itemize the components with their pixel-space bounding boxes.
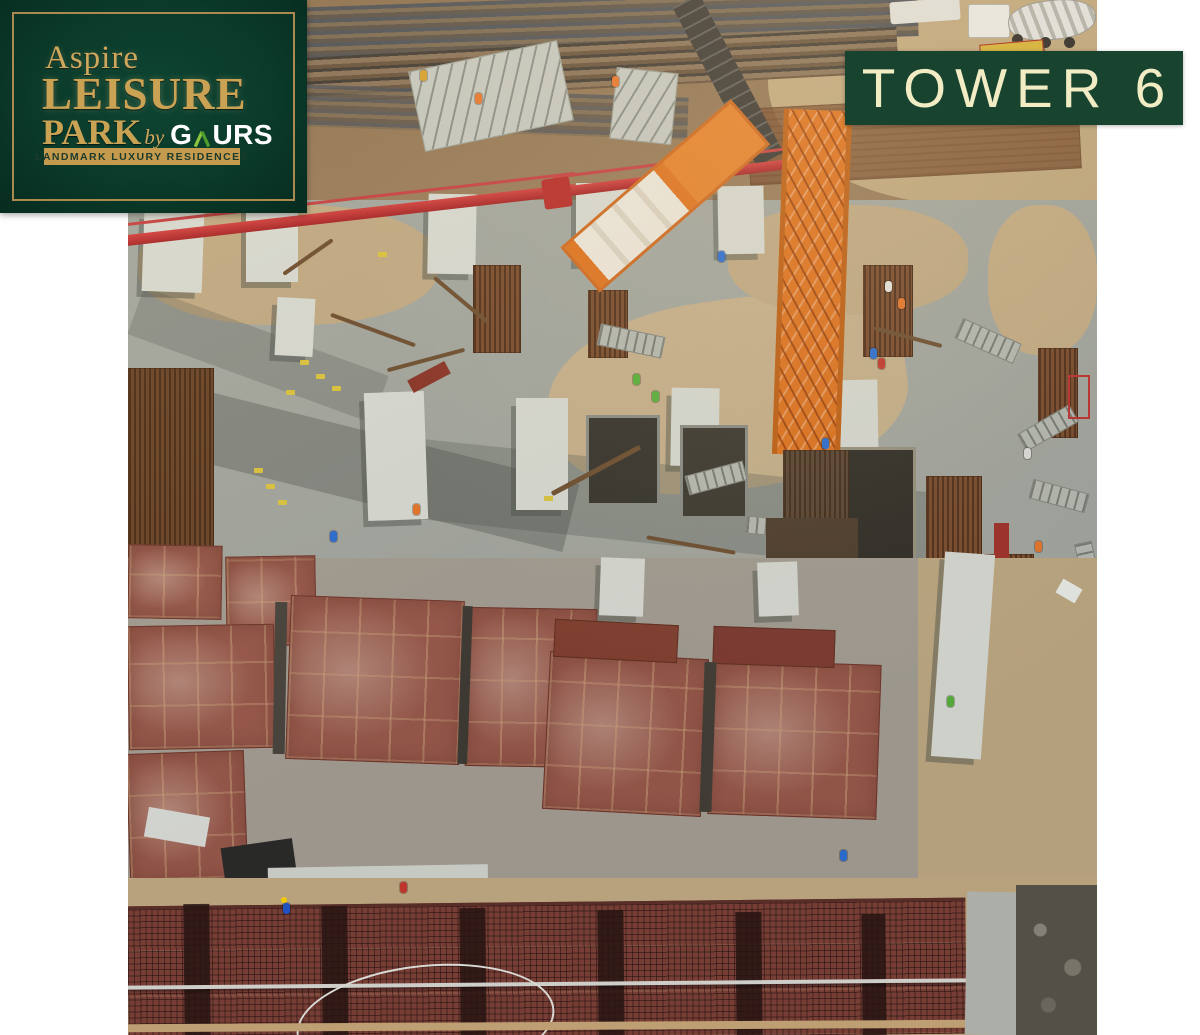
sand-patch xyxy=(988,205,1097,355)
deck-beam-shadow xyxy=(861,914,886,1035)
worker-figure xyxy=(1024,448,1031,459)
logo-by-text: by xyxy=(144,125,164,150)
page: Aspire LEISURE PARK by G URS LANDMARK LU… xyxy=(0,0,1200,1035)
gaurs-letter-g: G xyxy=(170,121,192,149)
worker-figure xyxy=(947,696,954,707)
yellow-debris xyxy=(544,496,553,501)
worker-figure xyxy=(840,850,847,861)
red-shuttering-panel xyxy=(128,544,223,620)
rubble-pit xyxy=(1016,885,1097,1035)
tower-label-text: TOWER 6 xyxy=(862,56,1175,120)
yellow-debris xyxy=(286,390,295,395)
formwork-wall-panel xyxy=(516,398,568,510)
worker-figure xyxy=(612,76,619,87)
logo-leisure-text: LEISURE xyxy=(42,72,247,117)
yellow-debris xyxy=(316,374,325,379)
worker-figure xyxy=(1035,541,1042,552)
yellow-debris xyxy=(378,252,387,257)
tower-label-banner: TOWER 6 xyxy=(845,51,1183,125)
red-shuttering-panel xyxy=(128,624,276,751)
formwork-wall-panel xyxy=(364,391,428,521)
formwork-wall-panel xyxy=(599,557,645,617)
floor-opening xyxy=(586,415,660,506)
formwork-wall-panel xyxy=(757,561,799,616)
worker-figure xyxy=(330,531,337,542)
red-shuttering-panel xyxy=(542,651,709,817)
logo-tagline-band: LANDMARK LUXURY RESIDENCES xyxy=(44,148,240,165)
red-shuttering-panel xyxy=(553,619,679,663)
formwork-wall-panel xyxy=(142,211,205,293)
tower-crane-mast xyxy=(772,109,852,456)
worker-figure xyxy=(413,504,420,515)
formwork-wall-panel xyxy=(717,186,764,255)
yellow-debris xyxy=(254,468,263,473)
red-shuttering-panel xyxy=(707,659,881,820)
yellow-debris xyxy=(266,484,275,489)
deck-beam-shadow xyxy=(735,912,762,1035)
yellow-debris xyxy=(332,386,341,391)
worker-figure xyxy=(400,882,407,893)
worker-figure xyxy=(878,358,885,369)
red-shuttering-panel xyxy=(285,595,465,765)
worker-figure xyxy=(633,374,640,385)
worker-figure xyxy=(652,391,659,402)
red-equipment xyxy=(994,523,1009,559)
plywood-sheet-stack xyxy=(609,67,678,145)
red-shuttering-panel xyxy=(712,626,835,668)
gaurs-wordmark: G URS xyxy=(170,121,273,149)
logo-park-text: PARK xyxy=(42,114,141,150)
truck-wheel xyxy=(1064,37,1075,48)
worker-figure xyxy=(885,281,892,292)
logo-park-by-gaurs-row: PARK by G URS xyxy=(42,114,273,150)
gaurs-leaf-a-icon xyxy=(193,128,211,149)
red-ladder-frame xyxy=(1068,375,1090,419)
worker-figure xyxy=(822,438,829,449)
worker-figure xyxy=(420,70,427,81)
worker-figure xyxy=(870,348,877,359)
deck-beam-shadow xyxy=(183,904,210,1035)
worker-figure xyxy=(475,93,482,104)
concrete-mixer-truck-cab xyxy=(968,4,1010,38)
worker-figure xyxy=(718,251,725,262)
formwork-wall-panel xyxy=(275,297,316,357)
rebar-cage xyxy=(473,265,521,353)
concrete-wall-strip xyxy=(965,892,1019,1035)
rebar-cage xyxy=(863,265,913,357)
worker-helmet xyxy=(281,897,287,903)
yellow-debris xyxy=(278,500,287,505)
gaurs-letters-urs: URS xyxy=(212,121,273,149)
brand-logo-badge: Aspire LEISURE PARK by G URS LANDMARK LU… xyxy=(0,0,307,213)
worker-figure xyxy=(898,298,905,309)
rebar-cage xyxy=(128,368,214,560)
pump-boom-joint xyxy=(541,176,573,210)
yellow-debris xyxy=(300,360,309,365)
deck-beam-shadow xyxy=(597,910,624,1035)
worker-figure xyxy=(283,903,290,914)
